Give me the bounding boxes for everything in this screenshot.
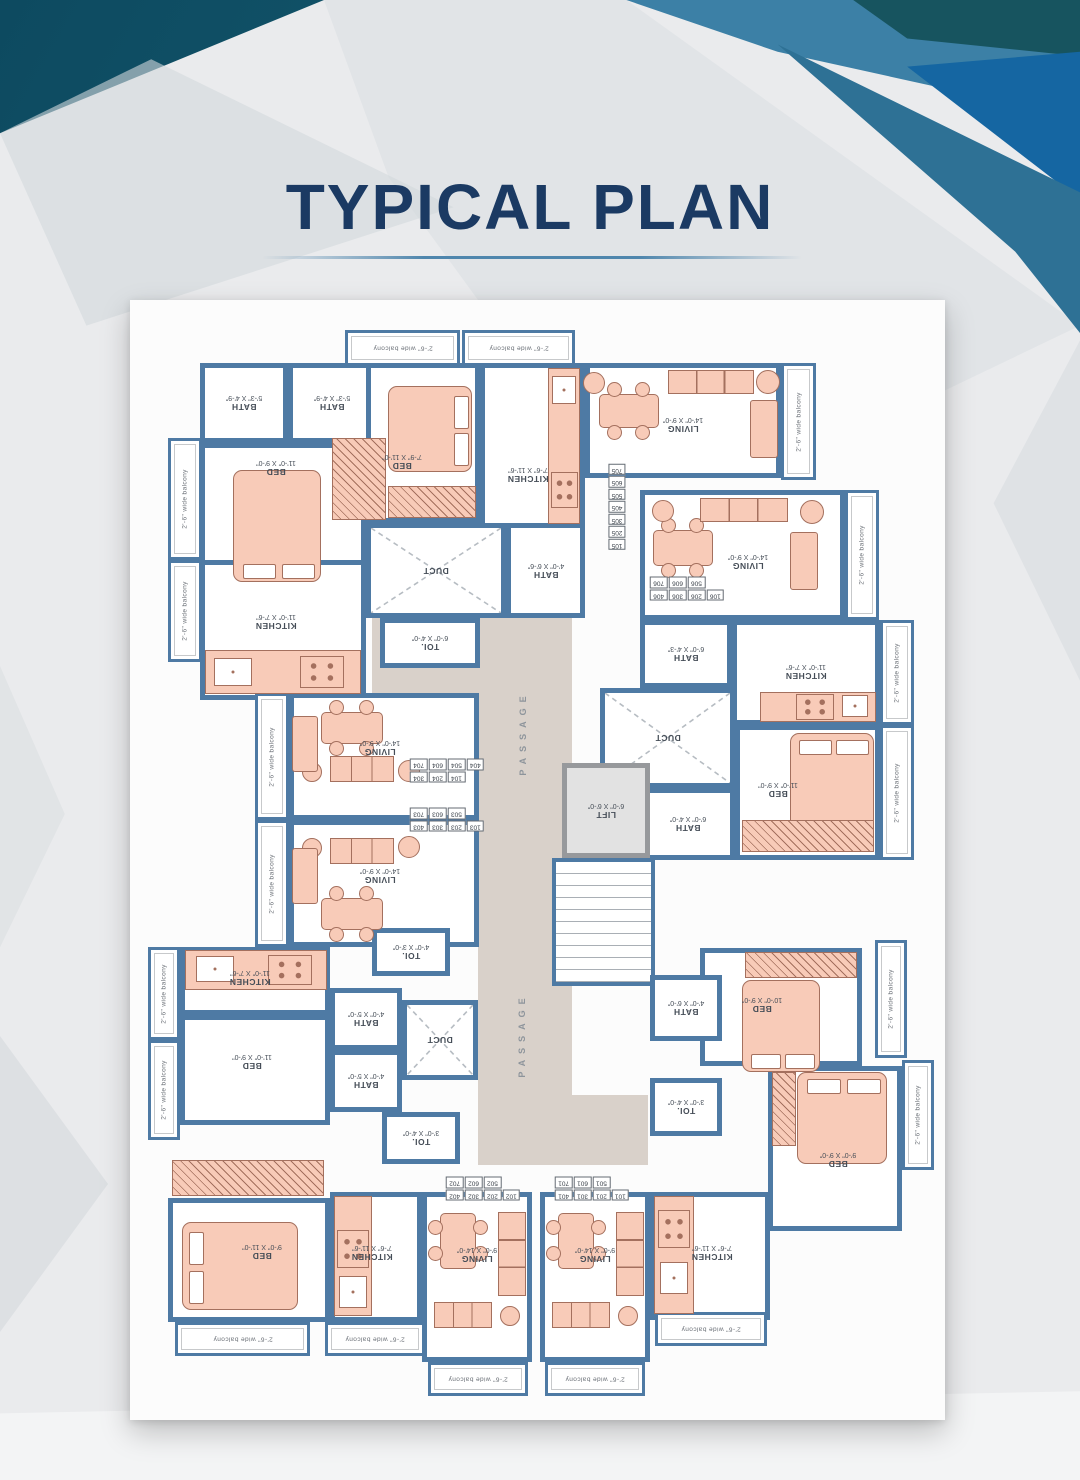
room-label: KITCHEN11'-0" X 7'-6": [229, 969, 270, 987]
sofa1: [750, 400, 778, 458]
room-name: DUCT: [423, 566, 449, 576]
room-dimensions: 4'-0" X 6'-0": [668, 999, 704, 1006]
room-label: TOI.3'-0" X 4'-0": [668, 1098, 704, 1116]
room-label: LIVING14'-0" X 9'-0": [663, 416, 703, 434]
room-name: BATH: [668, 1007, 704, 1017]
room-name: LIVING: [663, 424, 703, 434]
unit-number: 504: [448, 759, 466, 771]
room-label: BED11'-0" X 9'-0": [232, 1053, 272, 1071]
balcony-label: 2'-6" wide balcony: [161, 1060, 168, 1120]
unit-number: 406: [650, 590, 668, 602]
room-dimensions: 11'-0" X 7'-6": [229, 969, 270, 976]
dining-set: [650, 518, 714, 576]
room-dimensions: 11'-0" X 7'-6": [255, 613, 296, 620]
floor-plan: 2'-6" wide balcony2'-6" wide balconyBATH…: [0, 0, 1080, 1480]
bed-pillow: [243, 564, 277, 579]
unit-number: 706: [650, 577, 668, 589]
room-dimensions: 10'-0" X 9'-0": [742, 996, 782, 1003]
wardrobe: [388, 486, 476, 518]
bed: [790, 733, 874, 833]
room-name: BATH: [348, 1080, 384, 1090]
room-label: KITCHEN7'-6" X 11'-6": [351, 1244, 392, 1262]
bed-pillow: [189, 1232, 204, 1266]
room-label: DUCT: [423, 566, 449, 576]
sofa3: [330, 838, 394, 864]
balcony-label: 2'-6" wide balcony: [795, 392, 802, 452]
bed-pillow: [454, 433, 469, 466]
unit-number-row: 101201301401: [554, 1189, 629, 1202]
room-dimensions: 9'-0" X 14'-0": [575, 1246, 615, 1253]
unit-number-row: 105: [608, 538, 627, 551]
room-dimensions: 14'-0" X 9'-0": [360, 739, 400, 746]
room-label: BATH4'-0" X 5'-0": [348, 1072, 384, 1090]
dining-chair: [359, 700, 374, 715]
unit-number: 203: [448, 821, 466, 833]
room-dimensions: 7'-6" X 11'-6": [691, 1244, 732, 1251]
room-name: DUCT: [655, 733, 681, 743]
unit-number: 104: [448, 772, 466, 784]
room-dimensions: 6'-0" X 4'-3": [668, 645, 704, 652]
wardrobe: [745, 952, 857, 978]
room-dimensions: 6'-0" X 6'-0": [588, 802, 624, 809]
unit-number: 506: [688, 577, 706, 589]
unit-number-row: 305: [608, 513, 627, 526]
sofa3: [616, 1212, 644, 1296]
unit-number-row: 405: [608, 501, 627, 514]
unit-number: 304: [410, 772, 428, 784]
dining-chair: [428, 1220, 443, 1235]
room-label: TOI.3'-0" X 4'-0": [403, 1129, 439, 1147]
unit-number: 604: [429, 759, 447, 771]
room-name: BED: [820, 1159, 856, 1169]
passage-area: [572, 1095, 648, 1165]
room-name: DUCT: [427, 1035, 453, 1045]
balcony-label: 2'-6" wide balcony: [915, 1085, 922, 1145]
room-dimensions: 5'-3" X 4'-9": [314, 394, 350, 401]
unit-number: 401: [555, 1190, 573, 1202]
bed-pillow: [751, 1054, 781, 1069]
dining-chair: [591, 1220, 606, 1235]
unit-number: 606: [669, 577, 687, 589]
dining-set: [596, 382, 660, 438]
staircase: [552, 858, 655, 986]
bed-pillow: [282, 564, 316, 579]
unit-number-row: 705: [608, 463, 627, 476]
balcony-label: 2'-6" wide balcony: [859, 525, 866, 585]
balcony-label: 2'-6" wide balcony: [182, 469, 189, 529]
unit-number-chips: 105205305405505605705: [608, 463, 627, 551]
sink: [660, 1262, 688, 1294]
sofa1: [790, 532, 818, 590]
dining-table: [321, 898, 383, 930]
sink: [552, 376, 576, 404]
unit-number: 103: [466, 821, 484, 833]
stove: [551, 472, 578, 508]
unit-number-chips: 101201301401501601701: [554, 1177, 629, 1202]
unit-number: 106: [706, 590, 724, 602]
room-dimensions: 7'-9" X 11'-0": [382, 453, 422, 460]
unit-number-row: 501601701: [554, 1177, 629, 1190]
unit-number: 601: [574, 1177, 592, 1189]
room-name: LIVING: [360, 875, 400, 885]
room-name: LIVING: [457, 1254, 497, 1264]
bed-pillow: [836, 740, 868, 755]
passage-label: PASSAGE: [518, 690, 528, 775]
room-dimensions: 5'-3" X 4'-9": [226, 394, 262, 401]
round: [756, 370, 780, 394]
room-label: KITCHEN11'-0" X 7'-6": [255, 613, 296, 631]
sink: [214, 658, 252, 686]
room-name: BATH: [348, 1018, 384, 1028]
unit-number-row: 404504604704: [409, 759, 484, 772]
room-name: KITCHEN: [229, 977, 270, 987]
unit-number-row: 506606706: [649, 577, 724, 590]
room-dimensions: 4'-0" X 5'-0": [348, 1072, 384, 1079]
unit-number: 201: [593, 1190, 611, 1202]
room-name: LIVING: [575, 1254, 615, 1264]
unit-number-row: 505: [608, 488, 627, 501]
round: [652, 500, 674, 522]
dining-chair: [329, 741, 344, 756]
room-name: KITCHEN: [785, 671, 826, 681]
room-name: BED: [232, 1061, 272, 1071]
room-name: BED: [242, 1251, 282, 1261]
room-dimensions: 4'-0" X 3'-0": [393, 943, 429, 950]
unit-number: 705: [608, 464, 626, 476]
bed: [182, 1222, 298, 1310]
sink: [339, 1276, 367, 1308]
room-label: TOI.4'-0" X 3'-0": [393, 943, 429, 961]
balcony-label: 2'-6" wide balcony: [182, 581, 189, 641]
stove: [796, 694, 834, 720]
wardrobe: [172, 1160, 324, 1196]
unit-number: 206: [688, 590, 706, 602]
unit-number: 603: [429, 808, 447, 820]
room-label: BED9'-0" X 9'-0": [820, 1151, 856, 1169]
sofa3: [498, 1212, 526, 1296]
room-label: BATH6'-0" X 4'-3": [668, 645, 704, 663]
room-dimensions: 3'-0" X 4'-0": [668, 1098, 704, 1105]
unit-number: 105: [608, 539, 626, 551]
room-name: BED: [382, 461, 422, 471]
unit-number: 605: [608, 476, 626, 488]
room-name: LIVING: [728, 561, 768, 571]
round: [583, 372, 605, 394]
unit-number-chips: 102202302402502602702: [445, 1177, 520, 1202]
room-label: KITCHEN7'-6" X 11'-6": [507, 466, 548, 484]
unit-number: 202: [484, 1190, 502, 1202]
sink: [196, 956, 234, 982]
room-dimensions: 7'-6" X 11'-6": [351, 1244, 392, 1251]
passage-label: PASSAGE: [517, 992, 527, 1077]
unit-number: 703: [410, 808, 428, 820]
dining-chair: [635, 425, 650, 440]
room-name: BATH: [668, 653, 704, 663]
unit-number-row: 503603703: [409, 808, 484, 821]
unit-number-row: 102202302402: [445, 1189, 520, 1202]
room-name: TOI.: [668, 1106, 704, 1116]
round: [398, 836, 420, 858]
dining-chair: [359, 927, 374, 942]
round: [618, 1306, 638, 1326]
room-name: KITCHEN: [351, 1252, 392, 1262]
wardrobe: [772, 1072, 796, 1146]
unit-number: 704: [410, 759, 428, 771]
balcony-label: 2'-6" wide balcony: [489, 345, 549, 352]
room-label: KITCHEN7'-6" X 11'-6": [691, 1244, 732, 1262]
balcony-label: 2'-6" wide balcony: [681, 1326, 741, 1333]
bed-pillow: [807, 1079, 841, 1094]
room-dimensions: 11'-0" X 7'-6": [785, 663, 826, 670]
room-name: BED: [256, 467, 296, 477]
room-label: LIVING14'-0" X 9'-0": [360, 739, 400, 757]
balcony-label: 2'-6" wide balcony: [565, 1376, 625, 1383]
room-dimensions: 7'-6" X 11'-6": [507, 466, 548, 473]
dining-chair: [473, 1220, 488, 1235]
balcony-label: 2'-6" wide balcony: [213, 1336, 273, 1343]
dining-chair: [635, 382, 650, 397]
room-label: LIVING9'-0" X 14'-0": [575, 1246, 615, 1264]
room-label: DUCT: [427, 1035, 453, 1045]
sofa3: [434, 1302, 492, 1328]
unit-number: 102: [502, 1190, 520, 1202]
unit-number: 502: [484, 1177, 502, 1189]
unit-number: 501: [593, 1177, 611, 1189]
sofa3: [330, 756, 394, 782]
stove: [300, 656, 344, 688]
room-name: KITCHEN: [507, 474, 548, 484]
room-name: KITCHEN: [691, 1252, 732, 1262]
room-label: BATH4'-0" X 6'-0": [668, 999, 704, 1017]
dining-chair: [329, 927, 344, 942]
room-label: TOI.6'-0" X 4'-0": [412, 634, 448, 652]
unit-number-row: 502602702: [445, 1177, 520, 1190]
unit-number: 306: [669, 590, 687, 602]
room-dimensions: 6'-0" X 4'-0": [669, 815, 705, 822]
room-dimensions: 3'-0" X 4'-0": [403, 1129, 439, 1136]
bed-pillow: [189, 1271, 204, 1305]
room-dimensions: 9'-0" X 11'-0": [242, 1243, 282, 1250]
room-label: BATH5'-3" X 4'-9": [226, 394, 262, 412]
unit-number-row: 205: [608, 526, 627, 539]
sofa3: [668, 370, 754, 394]
balcony-label: 2'-6" wide balcony: [894, 643, 901, 703]
bed-pillow: [799, 740, 831, 755]
room-label: BATH6'-0" X 4'-0": [669, 815, 705, 833]
balcony-label: 2'-6" wide balcony: [894, 763, 901, 823]
wardrobe: [742, 820, 874, 852]
room-dimensions: 11'-0" X 9'-0": [758, 781, 798, 788]
unit-number-row: 605: [608, 476, 627, 489]
unit-number-row: 104204304: [409, 771, 484, 784]
unit-number-chips: 106206306406506606706: [649, 577, 724, 602]
stove: [268, 955, 312, 985]
room-label: LIFT6'-0" X 6'-0": [588, 802, 624, 820]
sofa3: [552, 1302, 610, 1328]
room-dimensions: 11'-0" X 9'-0": [232, 1053, 272, 1060]
unit-number: 101: [611, 1190, 629, 1202]
unit-number: 301: [574, 1190, 592, 1202]
balcony-label: 2'-6" wide balcony: [161, 964, 168, 1024]
room-name: BED: [758, 789, 798, 799]
room-name: LIFT: [588, 810, 624, 820]
page: TYPICAL PLAN 2'-6" wide balcony2'-6" wid…: [0, 0, 1080, 1480]
unit-number: 404: [466, 759, 484, 771]
room-dimensions: 9'-0" X 9'-0": [820, 1151, 856, 1158]
sofa3: [700, 498, 788, 522]
room-dimensions: 11'-0" X 9'-0": [256, 459, 296, 466]
bed-pillow: [454, 396, 469, 429]
unit-number: 205: [608, 526, 626, 538]
bed: [233, 470, 321, 582]
unit-number: 402: [446, 1190, 464, 1202]
unit-number: 403: [410, 821, 428, 833]
unit-number: 503: [448, 808, 466, 820]
room-dimensions: 4'-0" X 6'-6": [527, 562, 563, 569]
room-dimensions: 14'-0" X 9'-0": [360, 867, 400, 874]
unit-number: 305: [608, 514, 626, 526]
room-name: KITCHEN: [255, 621, 296, 631]
room-dimensions: 9'-0" X 14'-0": [457, 1246, 497, 1253]
bed: [742, 980, 820, 1072]
sofa1: [292, 848, 318, 904]
room-label: BED7'-9" X 11'-0": [382, 453, 422, 471]
round: [500, 1306, 520, 1326]
room-label: BED11'-0" X 9'-0": [256, 459, 296, 477]
room-name: LIVING: [360, 747, 400, 757]
room-label: LIVING9'-0" X 14'-0": [457, 1246, 497, 1264]
room-label: DUCT: [655, 733, 681, 743]
unit-number: 303: [429, 821, 447, 833]
room-name: BED: [742, 1004, 782, 1014]
room-label: BATH4'-0" X 6'-6": [527, 562, 563, 580]
unit-number: 701: [555, 1177, 573, 1189]
dining-chair: [359, 886, 374, 901]
unit-number: 302: [465, 1190, 483, 1202]
stove: [658, 1210, 690, 1248]
balcony-label: 2'-6" wide balcony: [269, 854, 276, 914]
unit-number: 405: [608, 501, 626, 513]
room-label: BATH5'-3" X 4'-9": [314, 394, 350, 412]
balcony-label: 2'-6" wide balcony: [269, 727, 276, 787]
unit-number: 505: [608, 489, 626, 501]
bed-pillow: [785, 1054, 815, 1069]
balcony-label: 2'-6" wide balcony: [345, 1336, 405, 1343]
dining-chair: [607, 425, 622, 440]
balcony-label: 2'-6" wide balcony: [888, 969, 895, 1029]
unit-number-chips: 103203303403503603703: [409, 808, 484, 833]
wardrobe: [332, 438, 386, 520]
room-label: BED9'-0" X 11'-0": [242, 1243, 282, 1261]
sink: [842, 695, 868, 717]
unit-number: 602: [465, 1177, 483, 1189]
unit-number-row: 106206306406: [649, 589, 724, 602]
room-name: TOI.: [403, 1137, 439, 1147]
unit-number: 702: [446, 1177, 464, 1189]
room-label: KITCHEN11'-0" X 7'-6": [785, 663, 826, 681]
room-dimensions: 14'-0" X 9'-0": [663, 416, 703, 423]
room-name: BATH: [527, 570, 563, 580]
room-dimensions: 14'-0" X 9'-0": [728, 553, 768, 560]
room-name: BATH: [314, 402, 350, 412]
room-dimensions: 6'-0" X 4'-0": [412, 634, 448, 641]
dining-chair: [607, 382, 622, 397]
unit-number: 204: [429, 772, 447, 784]
balcony-label: 2'-6" wide balcony: [448, 1376, 508, 1383]
balcony-label: 2'-6" wide balcony: [373, 345, 433, 352]
room-label: BED10'-0" X 9'-0": [742, 996, 782, 1014]
room-label: BATH4'-0" X 5'-0": [348, 1010, 384, 1028]
room-dimensions: 4'-0" X 5'-0": [348, 1010, 384, 1017]
room-label: LIVING14'-0" X 9'-0": [728, 553, 768, 571]
unit-number-row: 103203303403: [409, 820, 484, 833]
room-name: BATH: [226, 402, 262, 412]
unit-number-chips: 104204304404504604704: [409, 759, 484, 784]
room-name: BATH: [669, 823, 705, 833]
room-name: TOI.: [412, 642, 448, 652]
room-name: TOI.: [393, 951, 429, 961]
round: [800, 500, 824, 524]
dining-chair: [546, 1220, 561, 1235]
dining-table: [653, 530, 713, 566]
room-label: LIVING14'-0" X 9'-0": [360, 867, 400, 885]
dining-table: [599, 394, 659, 428]
room-label: BED11'-0" X 9'-0": [758, 781, 798, 799]
dining-set: [318, 886, 384, 940]
sofa1: [292, 716, 318, 772]
bed-pillow: [847, 1079, 881, 1094]
